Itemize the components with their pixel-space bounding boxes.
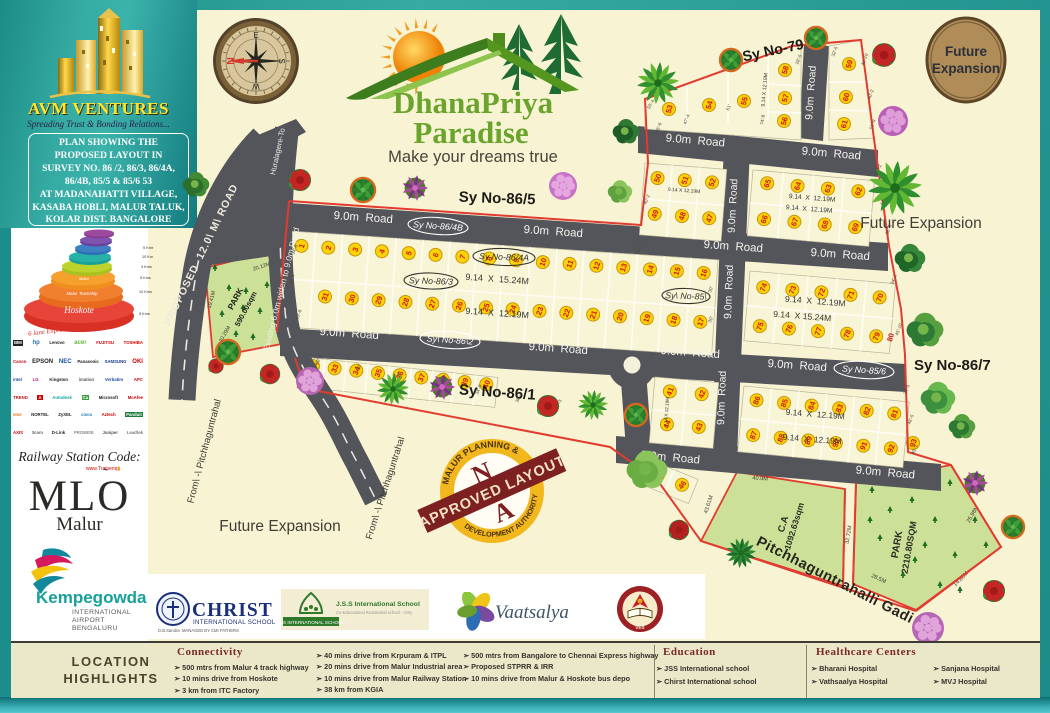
svg-text:3 Kms: 3 Kms [141, 265, 152, 269]
svg-text:BENGALURU: BENGALURU [72, 625, 118, 632]
svg-text:E: E [253, 31, 258, 40]
svg-text:Paradise: Paradise [413, 115, 528, 150]
svg-text:10 Kms: 10 Kms [139, 290, 152, 294]
svg-text:JSS INTERNATIONAL SCHOOL: JSS INTERNATIONAL SCHOOL [281, 620, 345, 625]
svg-text:Make your dreams true: Make your dreams true [388, 148, 558, 166]
svg-text:Future Expansion: Future Expansion [860, 215, 982, 232]
svg-text:CHRIST: CHRIST [192, 600, 273, 621]
svg-text:Hoskote: Hoskote [63, 305, 94, 315]
svg-text:N: N [225, 57, 237, 65]
svg-text:Sy No-86/5: Sy No-86/5 [459, 189, 536, 209]
svg-text:Future: Future [945, 44, 987, 59]
svg-text:Sy No-86/4A: Sy No-86/4A [479, 251, 529, 263]
svg-text:Vaatsalya: Vaatsalya [495, 602, 569, 623]
svg-text:Malur: Malur [79, 276, 90, 281]
svg-text:5 Kms: 5 Kms [143, 246, 153, 250]
svg-text:9.0m Road: 9.0m Road [715, 370, 729, 425]
svg-text:INTERNATIONAL SCHOOL: INTERNATIONAL SCHOOL [193, 619, 276, 626]
svg-text:VES: VES [635, 625, 644, 630]
svg-text:INTERNATIONAL: INTERNATIONAL [72, 609, 131, 616]
svg-text:Sy No-86/7: Sy No-86/7 [914, 357, 991, 374]
svg-text:Malur Township: Malur Township [66, 291, 98, 296]
svg-text:Future Expansion: Future Expansion [219, 518, 341, 535]
svg-text:S: S [277, 58, 286, 63]
svg-text:10 Kms: 10 Kms [142, 255, 153, 259]
svg-text:D.B.Sandra MANAGED BY CMI FAT: D.B.Sandra MANAGED BY CMI FATHERS [158, 628, 239, 633]
svg-text:Sy No-86/3: Sy No-86/3 [409, 275, 453, 287]
svg-text:Sy\ No-85\: Sy\ No-85\ [665, 290, 707, 301]
svg-text:Expansion: Expansion [932, 61, 1000, 76]
svg-text:5 Kms: 5 Kms [140, 276, 151, 280]
svg-text:9.0m Road: 9.0m Road [722, 264, 736, 319]
svg-text:Co-Educational Residential sch: Co-Educational Residential school - Ooty [336, 610, 413, 615]
svg-text:AIRPORT: AIRPORT [72, 617, 105, 624]
svg-text:32.72M: 32.72M [844, 525, 853, 545]
svg-text:5 Kms: 5 Kms [139, 312, 150, 316]
svg-text:Kempegowda: Kempegowda [36, 588, 147, 607]
svg-text:40.9M: 40.9M [752, 475, 768, 482]
svg-text:W: W [252, 82, 260, 91]
svg-text:43.61M: 43.61M [703, 495, 715, 515]
svg-text:J.S.S International School: J.S.S International School [336, 601, 420, 608]
svg-text:From\ -\ Pitchhaguntrahal: From\ -\ Pitchhaguntrahal [185, 398, 223, 504]
